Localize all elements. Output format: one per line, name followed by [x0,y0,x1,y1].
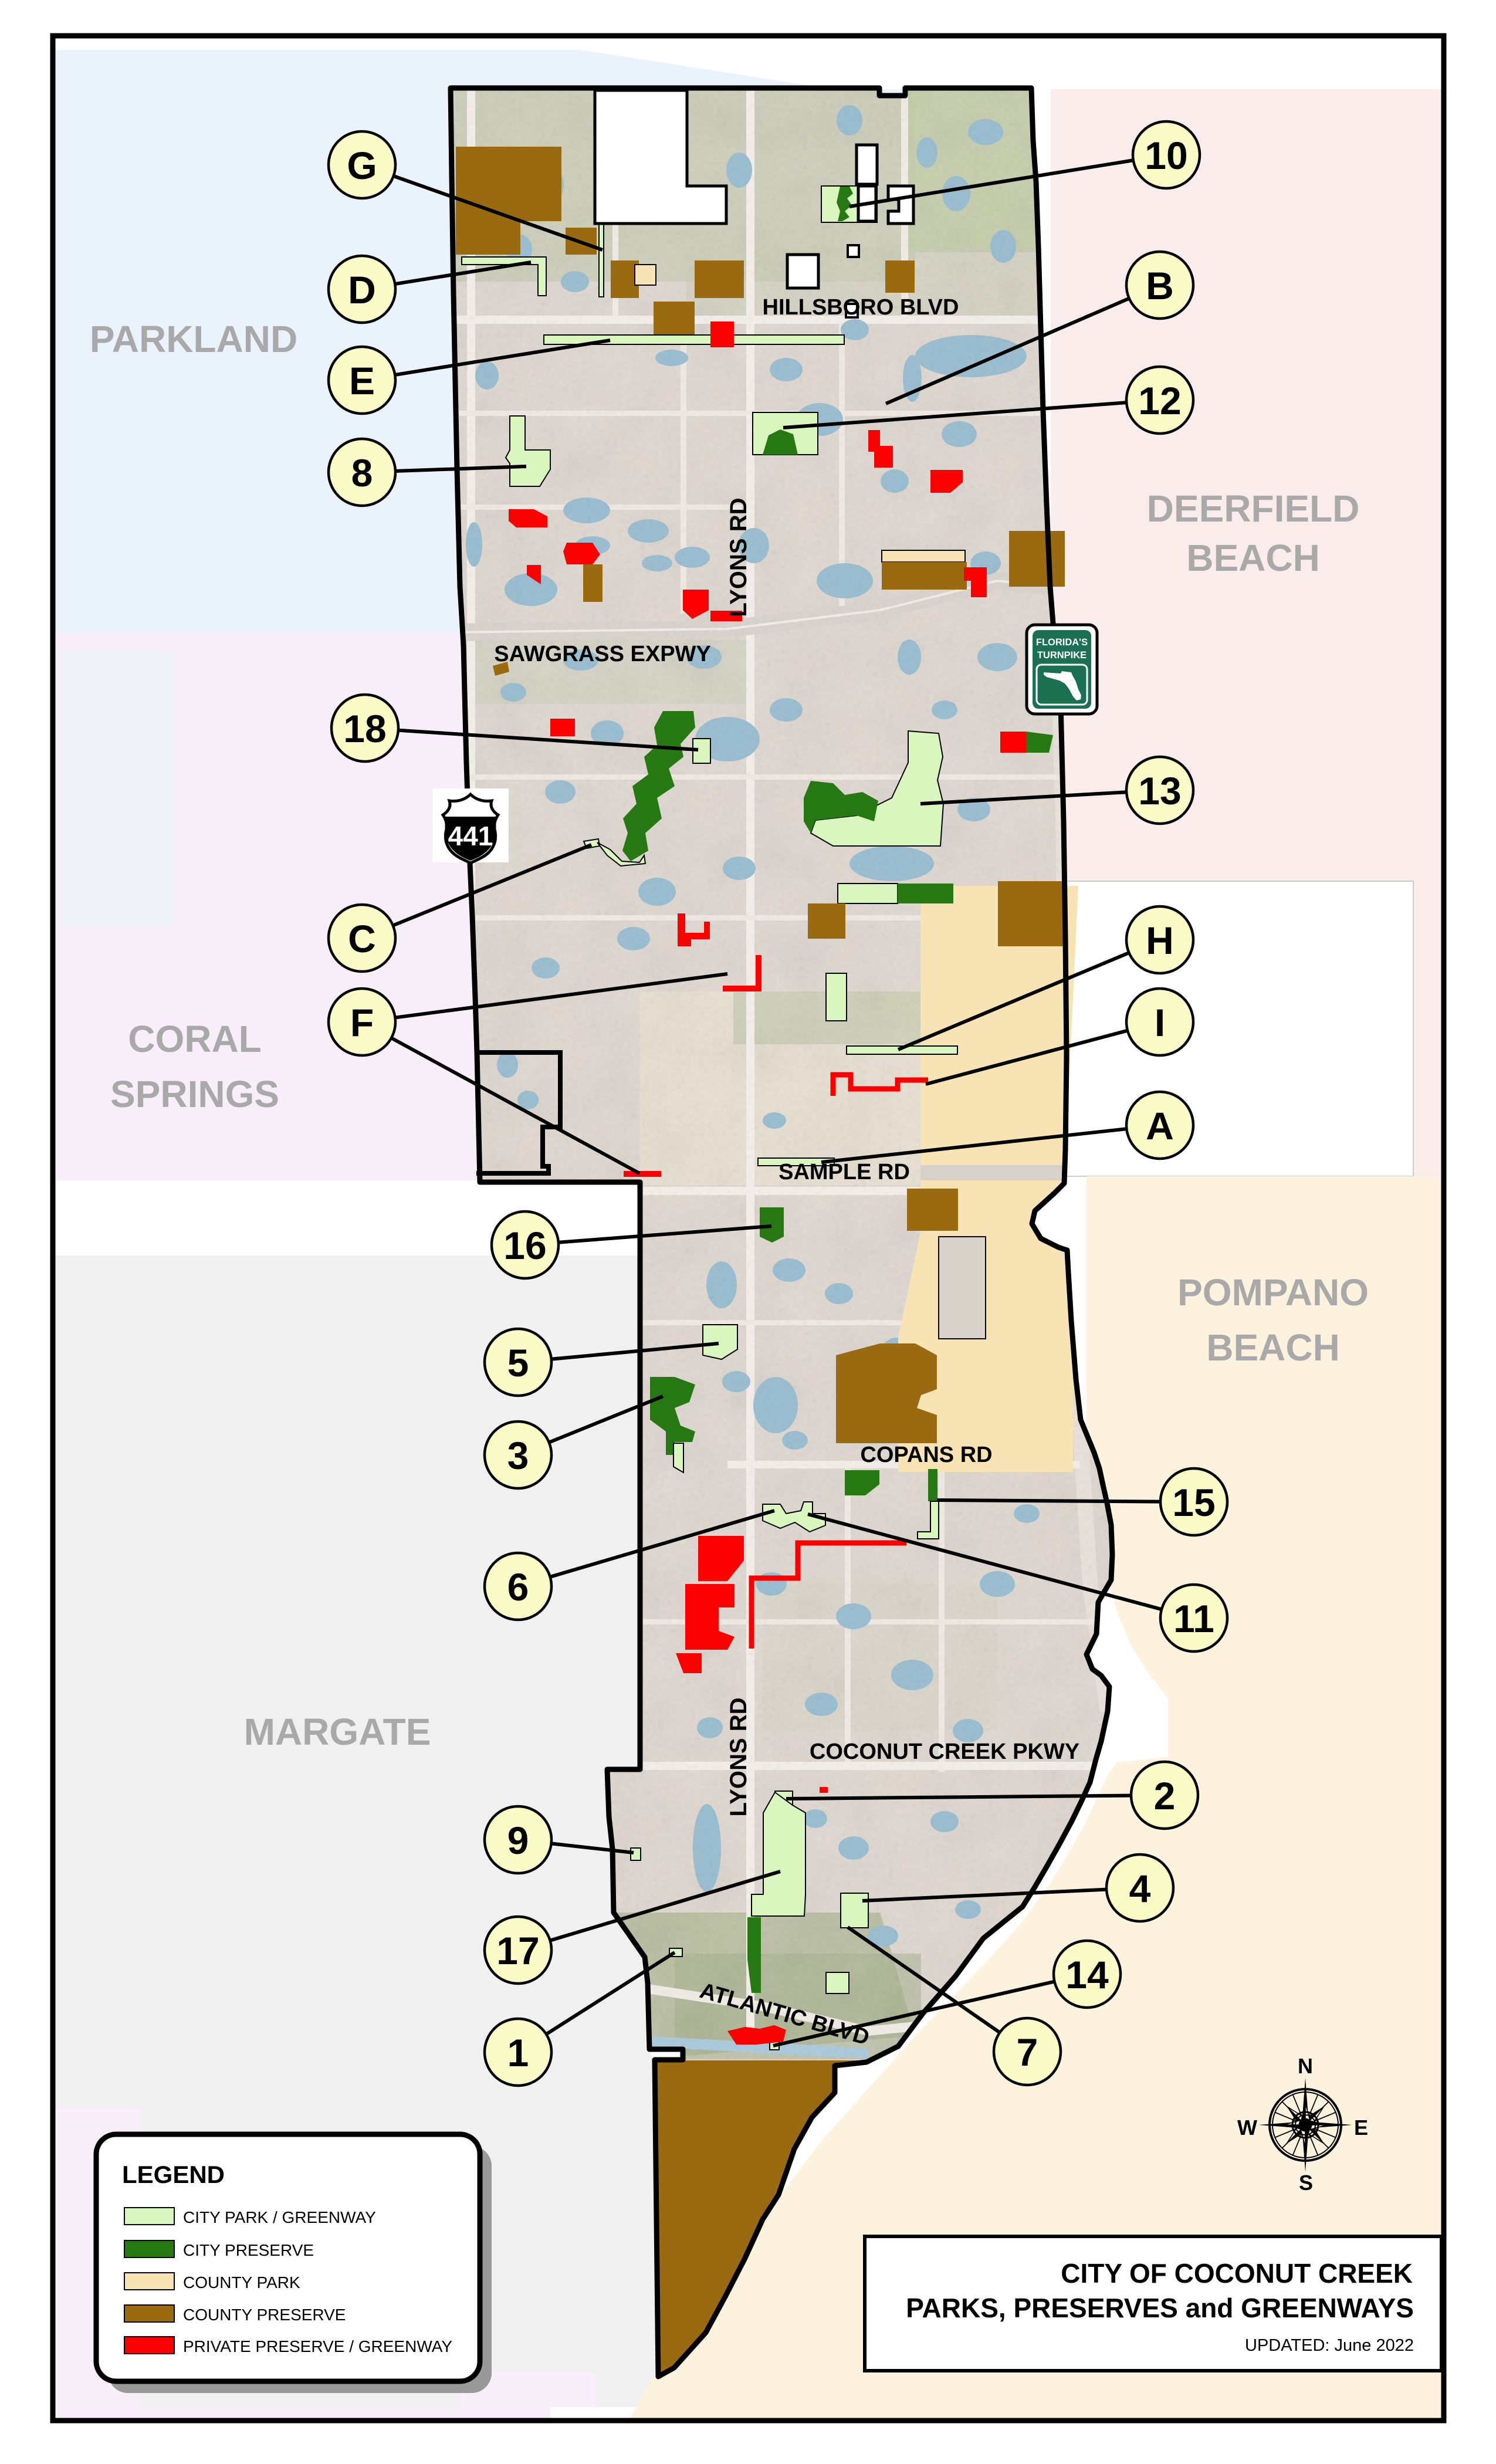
svg-text:HILLSBORO BLVD: HILLSBORO BLVD [763,295,959,320]
svg-text:10: 10 [1145,134,1187,177]
svg-text:441: 441 [448,821,493,851]
svg-text:CITY PARK / GREENWAY: CITY PARK / GREENWAY [183,2208,376,2226]
svg-text:SAWGRASS EXPWY: SAWGRASS EXPWY [494,642,711,666]
svg-text:8: 8 [351,451,373,495]
svg-text:A: A [1146,1104,1174,1148]
svg-text:N: N [1298,2054,1313,2078]
svg-text:11: 11 [1173,1597,1214,1640]
svg-text:12: 12 [1138,379,1181,422]
svg-text:TURNPIKE: TURNPIKE [1037,650,1087,661]
svg-text:15: 15 [1172,1481,1215,1524]
svg-text:COPANS RD: COPANS RD [860,1443,992,1467]
svg-text:1: 1 [507,2031,529,2074]
svg-text:I: I [1155,1001,1165,1044]
svg-text:C: C [348,917,376,960]
svg-text:H: H [1146,919,1174,962]
svg-text:G: G [347,144,377,187]
svg-text:COUNTY PARK: COUNTY PARK [183,2273,300,2292]
svg-text:5: 5 [507,1341,529,1385]
svg-text:4: 4 [1129,1867,1151,1910]
svg-text:W: W [1237,2116,1257,2140]
svg-text:PARKLAND: PARKLAND [90,318,297,360]
svg-text:3: 3 [507,1434,529,1477]
svg-text:MARGATE: MARGATE [244,1711,431,1753]
svg-text:CORAL: CORAL [128,1018,262,1060]
svg-text:FLORIDA'S: FLORIDA'S [1036,637,1088,648]
svg-text:LYONS RD: LYONS RD [726,1697,752,1816]
svg-text:18: 18 [343,707,386,750]
svg-text:16: 16 [503,1224,546,1267]
svg-text:LYONS RD: LYONS RD [726,497,752,617]
svg-text:POMPANO: POMPANO [1177,1271,1369,1314]
svg-text:E: E [349,359,375,402]
svg-text:BEACH: BEACH [1206,1326,1340,1369]
svg-text:BEACH: BEACH [1186,537,1320,579]
svg-text:PARKS, PRESERVES and GREENWAYS: PARKS, PRESERVES and GREENWAYS [906,2293,1414,2323]
svg-text:CITY OF COCONUT CREEK: CITY OF COCONUT CREEK [1061,2258,1413,2289]
svg-text:17: 17 [496,1929,539,1972]
svg-text:F: F [350,1001,374,1044]
svg-text:S: S [1299,2171,1313,2195]
svg-text:UPDATED: June 2022: UPDATED: June 2022 [1245,2336,1414,2355]
svg-text:CITY PRESERVE: CITY PRESERVE [183,2241,314,2259]
svg-text:6: 6 [507,1565,529,1609]
svg-text:DEERFIELD: DEERFIELD [1147,488,1360,530]
svg-text:2: 2 [1154,1774,1176,1817]
svg-text:SAMPLE RD: SAMPLE RD [779,1160,910,1184]
svg-text:LEGEND: LEGEND [122,2161,225,2188]
svg-text:E: E [1354,2116,1368,2140]
svg-text:COCONUT CREEK PKWY: COCONUT CREEK PKWY [810,1739,1079,1764]
svg-text:13: 13 [1138,769,1181,813]
svg-text:7: 7 [1017,2030,1038,2074]
svg-text:SPRINGS: SPRINGS [110,1073,279,1115]
svg-text:COUNTY PRESERVE: COUNTY PRESERVE [183,2306,346,2324]
svg-text:B: B [1146,264,1174,307]
svg-text:PRIVATE PRESERVE / GREENWAY: PRIVATE PRESERVE / GREENWAY [183,2337,452,2355]
svg-text:14: 14 [1065,1953,1109,1996]
svg-text:9: 9 [507,1819,529,1862]
svg-text:D: D [348,268,376,312]
